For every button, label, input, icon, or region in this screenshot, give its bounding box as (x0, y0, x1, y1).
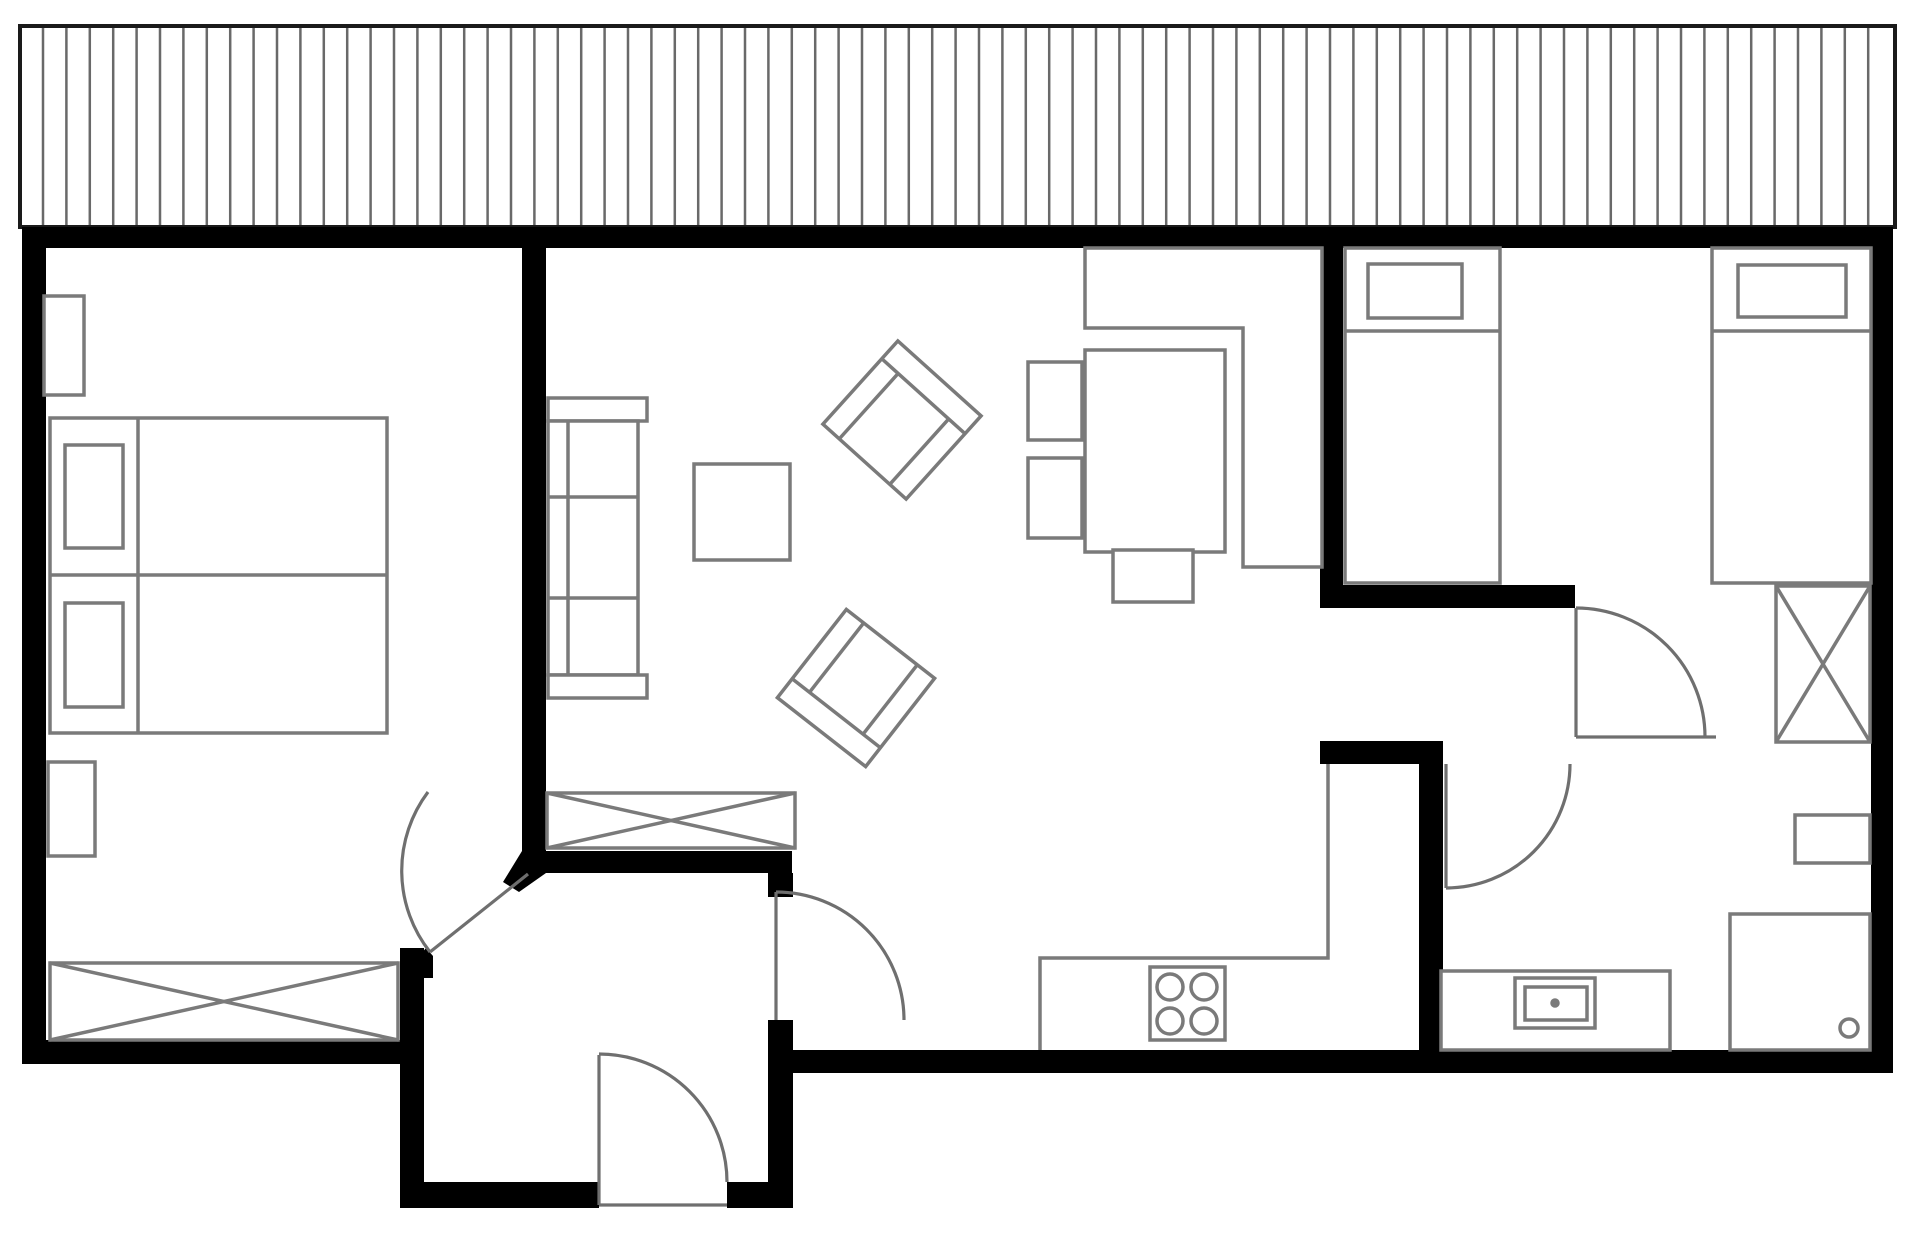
floor-plan-drawing (0, 0, 1920, 1234)
wall-bottom-left (22, 1040, 424, 1064)
bathroom-sink-drain (1552, 1000, 1558, 1006)
wall-hall-east-lower (768, 1020, 793, 1208)
single-bed-right-pillow (1738, 265, 1846, 317)
door-bedroom1-arc (402, 792, 430, 952)
wall-bedroom1-living (522, 227, 546, 873)
nightstand-bottom (48, 762, 95, 856)
wall-hall-corner-bevel (503, 851, 546, 892)
wall-vestibule-bottom-left (400, 1182, 599, 1208)
single-bed-left-pillow (1368, 264, 1462, 318)
dining-chair-2 (1028, 458, 1082, 538)
wall-exterior-top (22, 227, 1893, 248)
coffee-table (694, 464, 790, 560)
door-entry-arc (599, 1054, 727, 1182)
sofa-armrest-top (548, 398, 647, 421)
sofa-armrest-bottom (548, 675, 647, 698)
door-hall-living-arc (776, 892, 904, 1020)
wall-vestibule-bottom-right (727, 1182, 793, 1208)
pillow-2 (65, 603, 123, 707)
wall-bottom-right (768, 1050, 1893, 1073)
door-bathroom-arc (1446, 764, 1570, 888)
burner-1 (1157, 974, 1183, 1000)
dining-chair-3 (1113, 550, 1193, 602)
burner-4 (1191, 1008, 1217, 1034)
sofa-body (548, 421, 638, 675)
deck-terrace (20, 26, 1895, 227)
wall-hall-top (522, 851, 792, 873)
floor-plan-page (0, 0, 1920, 1234)
dining-chair-1 (1028, 362, 1082, 440)
armchair-1 (823, 341, 981, 499)
bathroom-cabinet (1795, 815, 1870, 863)
wall-bedroom2-south (1342, 585, 1575, 608)
door-bedroom1-leaf (430, 874, 528, 952)
burner-3 (1157, 1008, 1183, 1034)
door-bedroom2-arc (1576, 608, 1705, 737)
dining-table (1085, 350, 1225, 552)
wall-exterior-right (1871, 227, 1893, 1073)
armchair-1-frame (823, 341, 981, 499)
shower-drain (1840, 1019, 1858, 1037)
pillow-1 (65, 445, 123, 548)
nightstand-top (44, 296, 84, 395)
wall-vestibule-left (400, 948, 424, 1208)
burner-2 (1191, 974, 1217, 1000)
armchair-2 (777, 609, 934, 766)
